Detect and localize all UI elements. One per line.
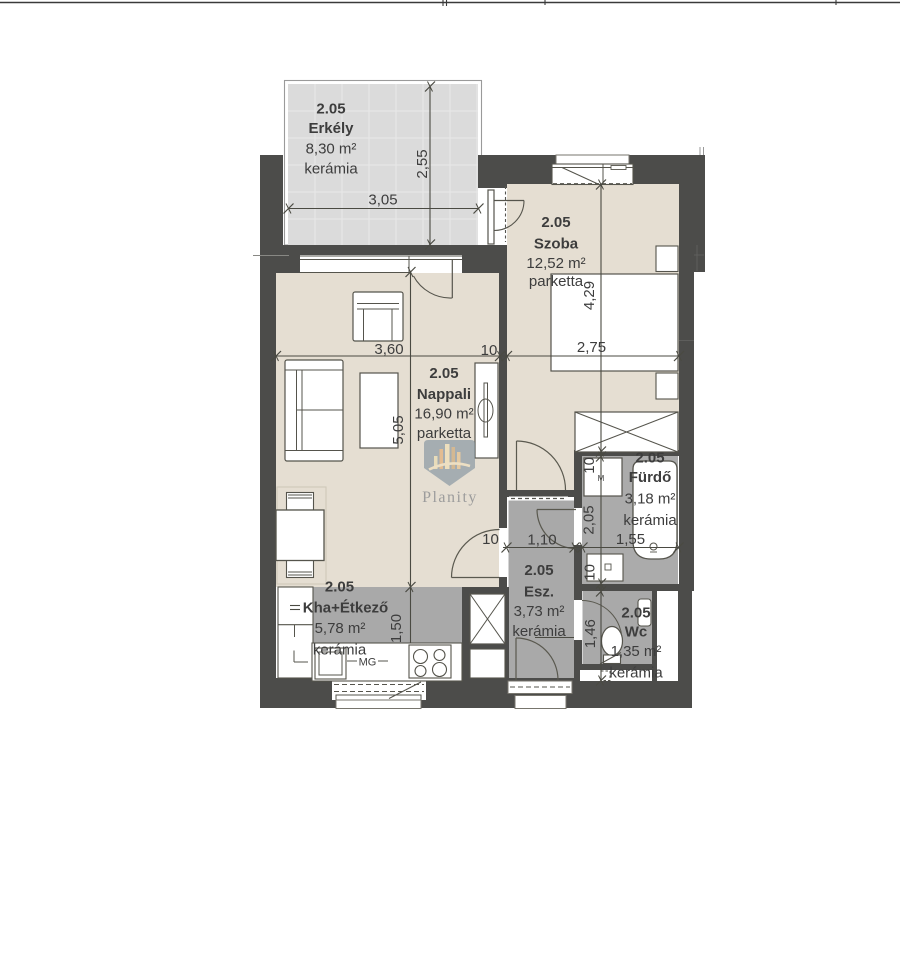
svg-text:16,90 m²: 16,90 m² [414, 406, 473, 423]
svg-text:5,05: 5,05 [390, 415, 407, 444]
svg-text:2,55: 2,55 [414, 149, 431, 178]
svg-text:4,29: 4,29 [581, 281, 598, 310]
svg-text:Planity: Planity [422, 489, 478, 506]
svg-text:3,60: 3,60 [374, 341, 403, 358]
svg-text:2,75: 2,75 [577, 339, 606, 356]
svg-text:2.05: 2.05 [635, 450, 664, 467]
svg-text:1,46: 1,46 [582, 619, 599, 648]
svg-text:kerámia: kerámia [609, 665, 663, 682]
svg-text:2.05: 2.05 [316, 101, 345, 118]
svg-text:2,05: 2,05 [581, 505, 598, 534]
svg-text:5,78 m²: 5,78 m² [315, 620, 366, 637]
svg-text:Wc: Wc [625, 624, 648, 641]
svg-text:Szoba: Szoba [534, 236, 579, 253]
svg-text:MG: MG [359, 657, 377, 669]
svg-text:3,18 m²: 3,18 m² [625, 491, 676, 508]
svg-text:10: 10 [582, 564, 599, 581]
svg-text:2.05: 2.05 [429, 365, 458, 382]
svg-text:parketta: parketta [417, 425, 472, 442]
svg-text:2.05: 2.05 [325, 579, 354, 596]
svg-text:kerámia: kerámia [304, 161, 358, 178]
svg-text:10: 10 [482, 531, 499, 548]
svg-text:10: 10 [481, 342, 498, 359]
svg-text:12,52 m²: 12,52 m² [526, 255, 585, 272]
svg-text:3,05: 3,05 [368, 192, 397, 209]
svg-text:parketta: parketta [529, 273, 584, 290]
svg-text:kerámia: kerámia [512, 623, 566, 640]
svg-text:Kha+Étkező: Kha+Étkező [303, 600, 388, 617]
svg-text:1,10: 1,10 [527, 532, 556, 549]
svg-text:8,30 m²: 8,30 m² [306, 141, 357, 158]
svg-text:kerámia: kerámia [623, 512, 677, 529]
svg-text:Nappali: Nappali [417, 386, 471, 403]
svg-text:1,50: 1,50 [388, 614, 405, 643]
svg-text:1,35 m²: 1,35 m² [611, 643, 662, 660]
svg-text:Esz.: Esz. [524, 584, 554, 601]
svg-text:2.05: 2.05 [541, 214, 570, 231]
svg-text:Erkély: Erkély [308, 120, 354, 137]
svg-text:3,73 m²: 3,73 m² [514, 603, 565, 620]
svg-text:1,55: 1,55 [616, 531, 645, 548]
svg-text:2.05: 2.05 [524, 562, 553, 579]
svg-text:10: 10 [581, 457, 598, 474]
svg-text:Fürdő: Fürdő [629, 469, 672, 486]
svg-text:2.05: 2.05 [621, 605, 650, 622]
